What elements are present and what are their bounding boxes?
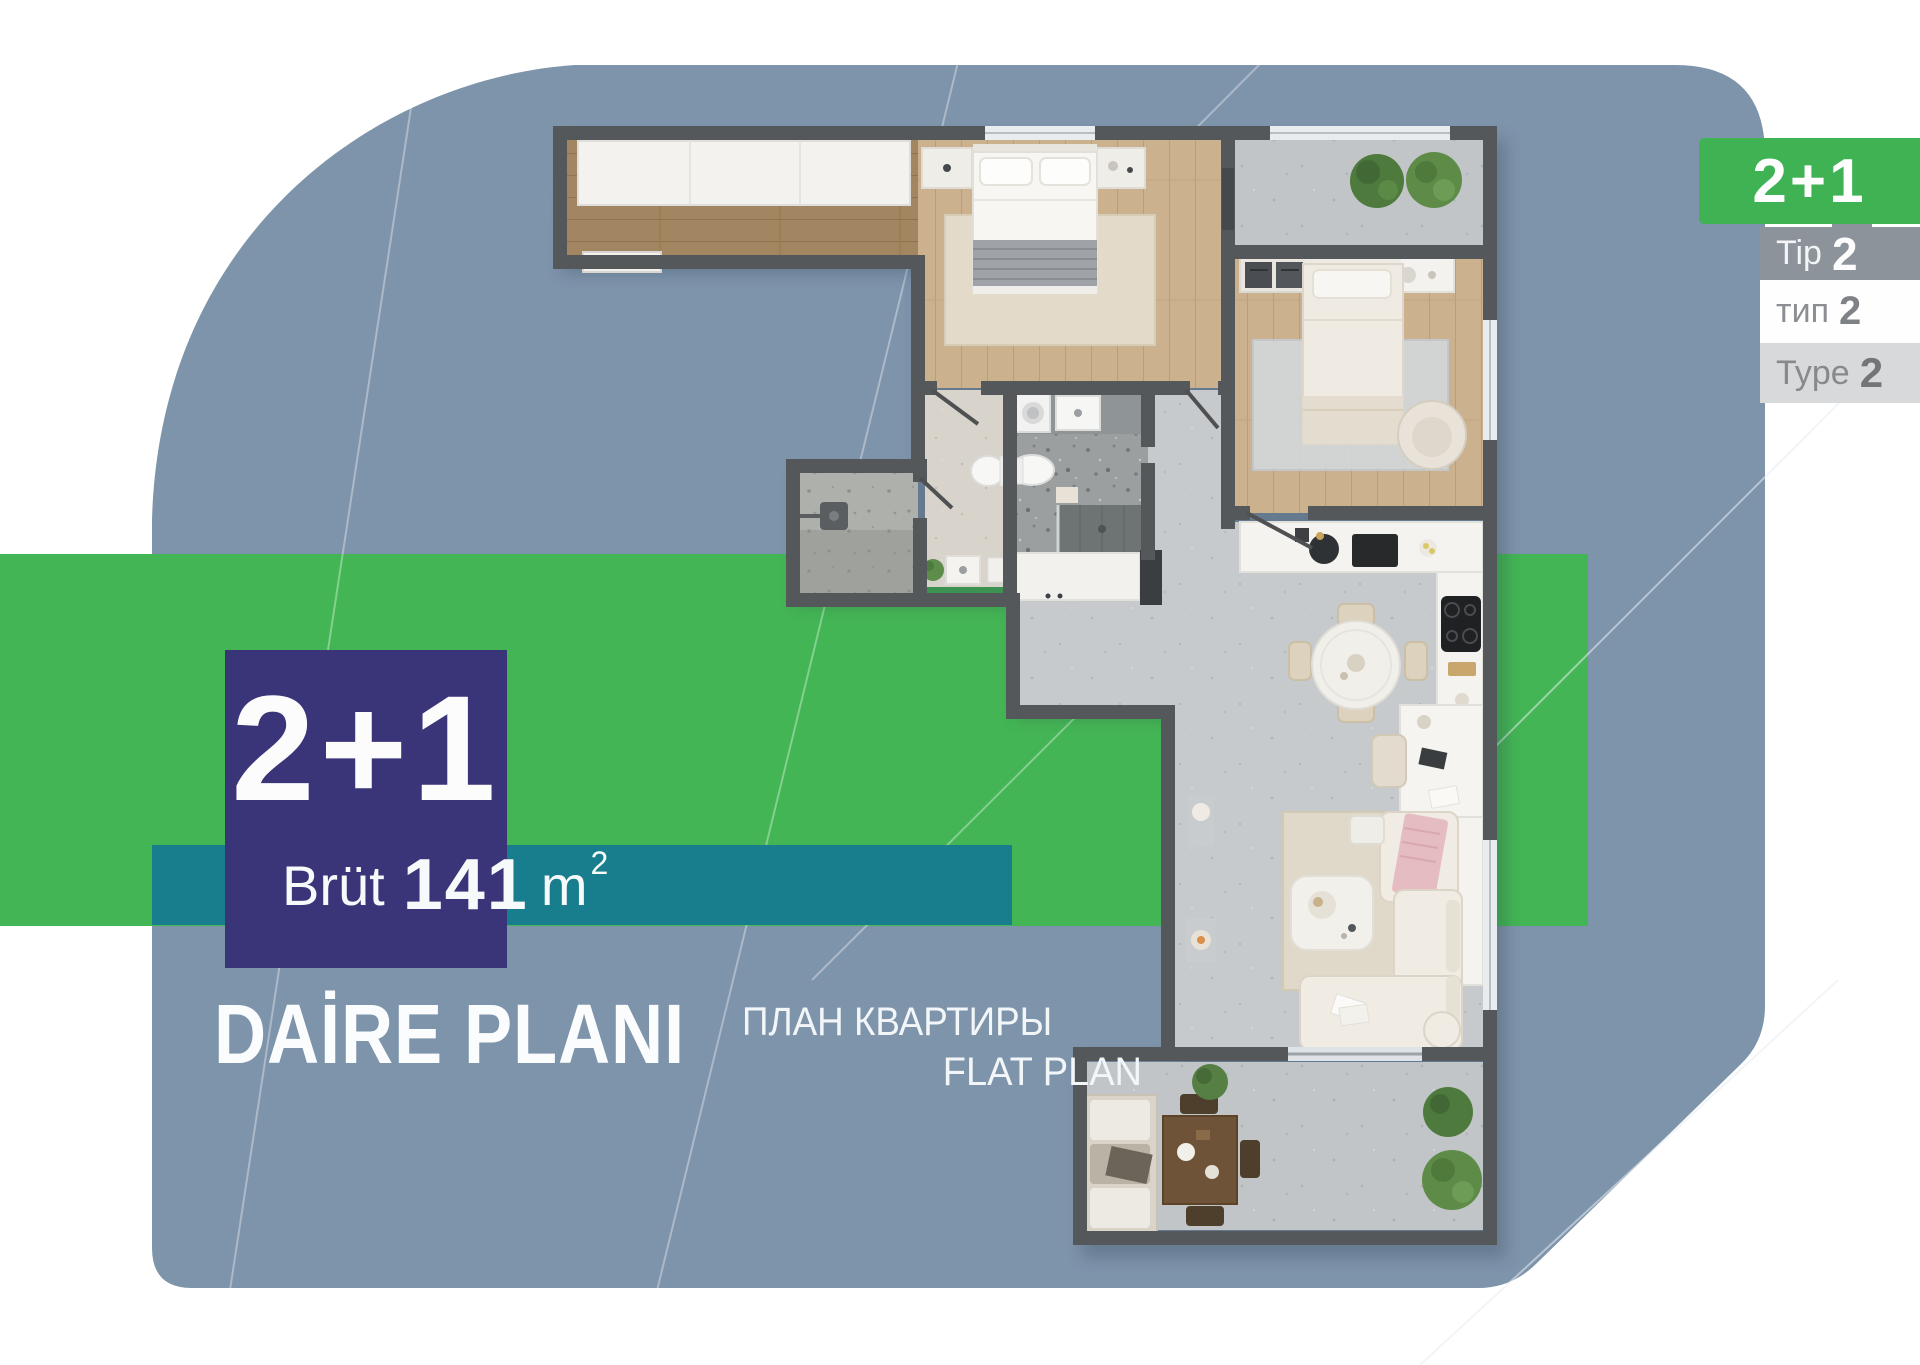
cooktop <box>1441 596 1481 652</box>
plant <box>1192 1064 1228 1100</box>
type-row-en-value: 2 <box>1860 349 1883 397</box>
wardrobe <box>578 141 910 205</box>
area-label: Brüt <box>282 853 385 918</box>
type-row-ru-label: тип <box>1776 292 1829 331</box>
outdoor-chair <box>1186 1206 1224 1226</box>
plant <box>1423 1087 1473 1137</box>
type-row-tr: Tip 2 <box>1760 227 1920 280</box>
balcony-door <box>1222 168 1234 230</box>
plant <box>1350 154 1404 208</box>
outdoor-table <box>1163 1116 1237 1204</box>
magazine <box>1339 1004 1369 1026</box>
area-unit-sup: 2 <box>591 845 609 882</box>
plant <box>1406 152 1462 208</box>
area-value: 141 <box>403 844 529 926</box>
corner-badge: 2+1 <box>1699 138 1920 224</box>
cutting-board <box>1448 662 1476 676</box>
type-row-tr-value: 2 <box>1832 227 1858 281</box>
coffee-table <box>1291 876 1373 950</box>
master-bed <box>973 144 1097 294</box>
plant <box>1422 1150 1482 1210</box>
outdoor-sofa <box>1085 1095 1157 1235</box>
page-subtitles: ПЛАН КВАРТИРЫ FLAT PLAN <box>742 1000 1142 1095</box>
page-title-en: FLAT PLAN <box>762 1050 1142 1095</box>
page-title-ru: ПЛАН КВАРТИРЫ <box>742 1000 1110 1045</box>
bedroom2-furniture <box>1240 256 1466 470</box>
area-band: Brüt 141 m 2 <box>282 845 608 925</box>
nightstand-right <box>1097 148 1145 188</box>
page-title: DAİRE PLANI <box>214 986 685 1083</box>
type-row-ru-value: 2 <box>1839 289 1861 334</box>
master-bedroom-furniture <box>922 144 1155 345</box>
poster-canvas: 2+1 Brüt 141 m 2 DAİRE PLANI ПЛАН КВАРТИ… <box>0 0 1920 1365</box>
type-row-tr-label: Tip <box>1776 234 1822 273</box>
round-chair <box>1398 401 1466 469</box>
area-unit: m <box>541 853 588 918</box>
kitchen-sink <box>1309 534 1339 564</box>
outdoor-chair <box>1240 1140 1260 1178</box>
area-box-bedrooms: 2+1 <box>225 650 507 846</box>
dining-chair <box>1405 642 1427 680</box>
shower-wet-zone <box>795 530 918 595</box>
type-row-en-label: Type <box>1776 354 1850 393</box>
kitchen-basin <box>1352 534 1398 567</box>
cushion <box>1350 816 1384 844</box>
type-row-ru: тип 2 <box>1760 280 1920 343</box>
towel <box>1056 487 1078 503</box>
dining-chair <box>1289 642 1311 680</box>
kitchen-sideboard <box>1013 553 1140 600</box>
type-row-en: Type 2 <box>1760 343 1920 403</box>
bedroom2-bed <box>1303 256 1403 444</box>
shower-cell <box>1058 505 1146 553</box>
desk-chair <box>1372 735 1406 787</box>
